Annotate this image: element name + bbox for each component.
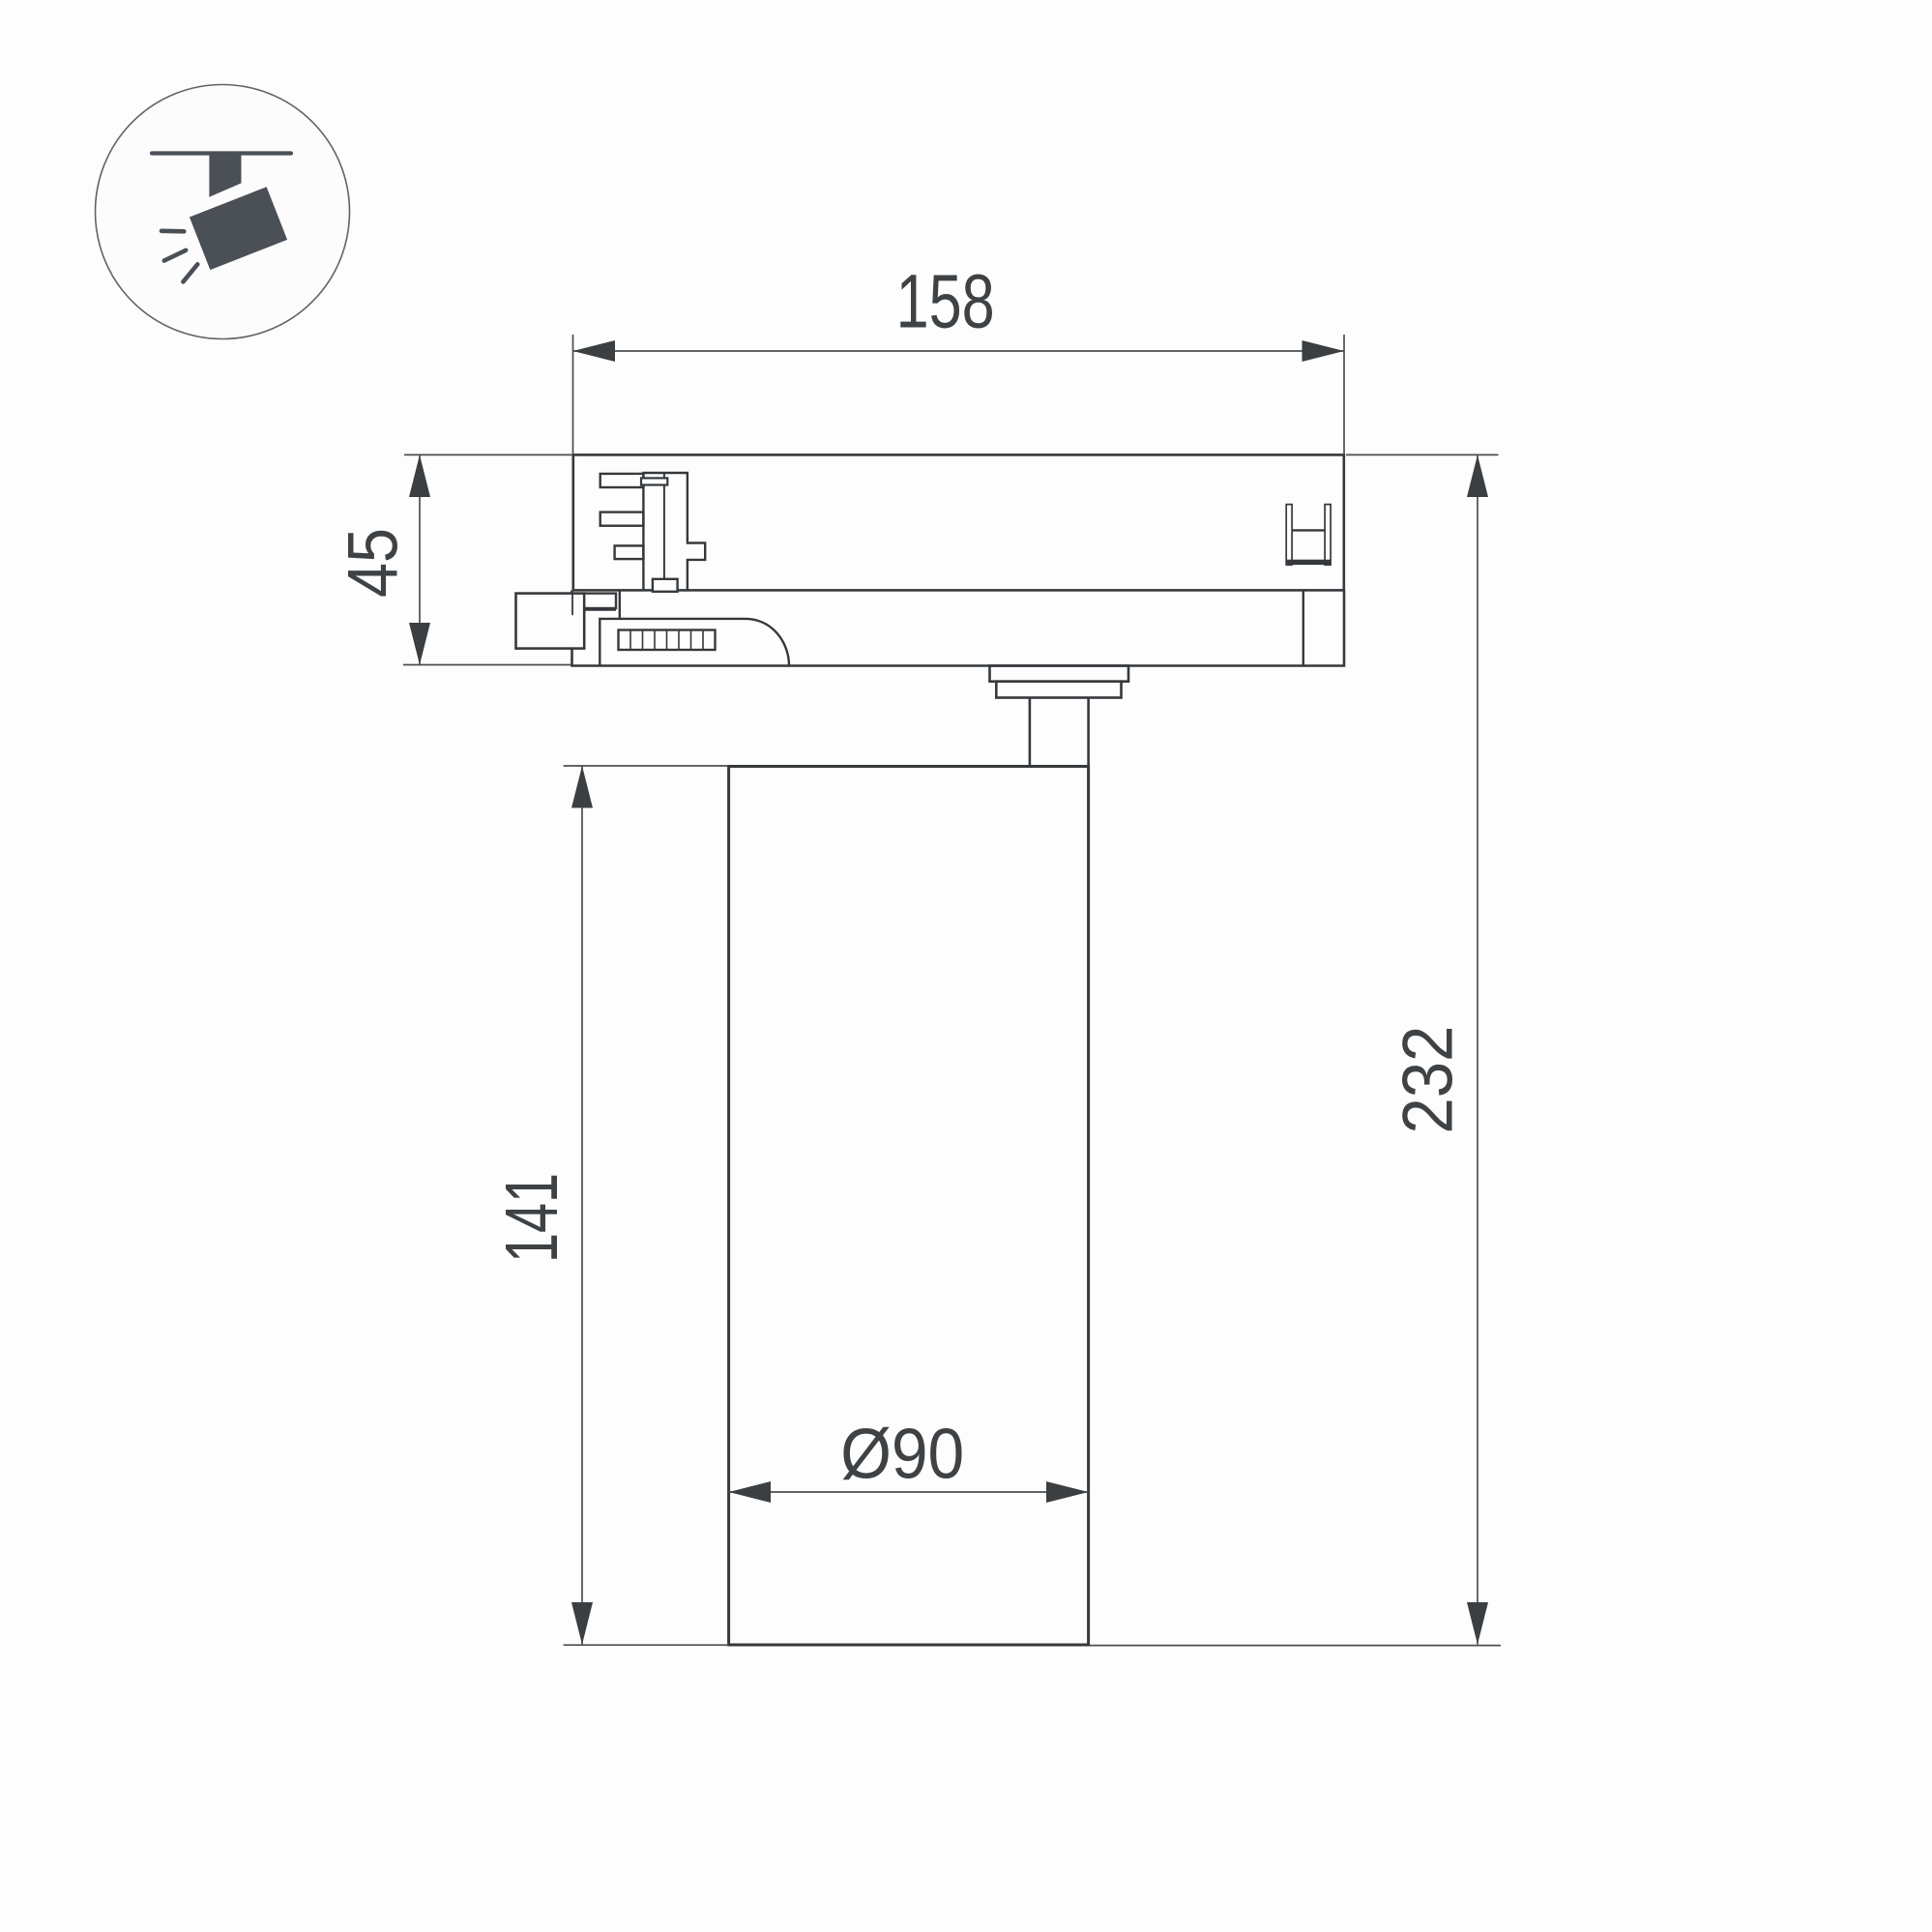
svg-text:Ø90: Ø90 xyxy=(840,1416,964,1494)
svg-text:232: 232 xyxy=(1390,1026,1468,1134)
svg-text:158: 158 xyxy=(896,258,995,344)
svg-text:141: 141 xyxy=(490,1173,573,1263)
svg-text:45: 45 xyxy=(334,528,412,598)
